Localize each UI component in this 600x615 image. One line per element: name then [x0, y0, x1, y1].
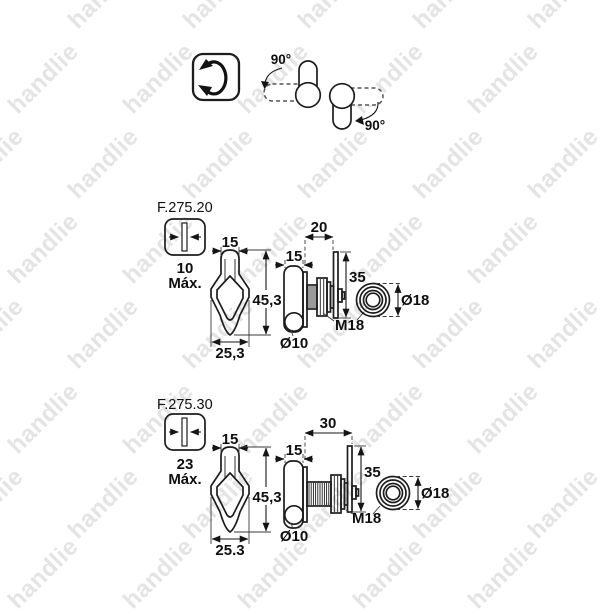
watermark-text: handlie — [0, 123, 30, 205]
product-code: F.275.30 — [157, 397, 213, 413]
watermark-text: handlie — [408, 123, 490, 205]
watermark-text: handlie — [3, 208, 85, 290]
dim-height: 45,3 — [252, 292, 281, 309]
nut — [317, 278, 327, 316]
watermark-text: handlie — [63, 0, 145, 35]
watermark-text: handlie — [523, 123, 600, 205]
nut — [331, 475, 341, 513]
dim-knob-width: 25.3 — [215, 542, 244, 559]
dim-body-length: 30 — [320, 415, 337, 432]
side-view: 20 15 35 M18 Ø10 — [275, 219, 366, 352]
knob-side — [284, 266, 303, 332]
dim-thread: M18 — [335, 317, 364, 334]
dim-cam-height: 35 — [349, 269, 366, 286]
product-drawing-f275-20: F.275.20 10 Máx. 15 45,3 25,3 — [140, 195, 450, 365]
watermark-text: handlie — [463, 38, 545, 120]
dim-knob-depth: 15 — [286, 248, 303, 265]
lever-hub — [330, 84, 355, 109]
hole — [285, 506, 303, 524]
thread-body — [307, 285, 317, 309]
watermark-text: handlie — [178, 0, 260, 35]
watermark-text: handlie — [0, 293, 30, 375]
cam-lever — [334, 252, 339, 318]
watermark-text: handlie — [463, 378, 545, 460]
lever-down-diagram: 90° — [330, 84, 386, 133]
front-view: 15 45,3 25.3 — [211, 431, 282, 559]
product-drawing-f275-30: F.275.30 23 Máx. 15 45,3 25.3 — [140, 390, 455, 575]
watermark-text: handlie — [0, 0, 30, 35]
panel-thickness-symbol: 23 Máx. — [165, 414, 205, 488]
knob-inner-line — [217, 276, 243, 320]
watermark-text: handlie — [63, 123, 145, 205]
dim-knob-width: 25,3 — [215, 345, 244, 362]
dim-hole: Ø10 — [280, 335, 308, 352]
cam-lever — [348, 446, 353, 512]
back-view: Ø18 — [377, 477, 450, 510]
watermark-text: handlie — [463, 208, 545, 290]
watermark-text: handlie — [3, 38, 85, 120]
angle-label-left: 90° — [271, 52, 291, 67]
lever-hub — [296, 83, 321, 108]
rotation-icon — [193, 54, 239, 100]
watermark-text: handlie — [3, 533, 85, 615]
nut-face — [377, 477, 410, 510]
dim-thread: M18 — [352, 510, 381, 527]
knob-side — [284, 461, 303, 528]
cam-screw-tip — [356, 489, 359, 496]
watermark-text: handlie — [63, 293, 145, 375]
cam-screw-tip — [342, 292, 345, 299]
max-thickness-suffix: Máx. — [168, 471, 201, 488]
watermark-text: handlie — [0, 463, 30, 545]
catalog-page: { "watermark": { "text": "handlie" }, "o… — [0, 0, 600, 600]
back-view: Ø18 — [357, 284, 430, 317]
watermark-text: handlie — [463, 533, 545, 615]
dim-knob-top-width: 15 — [222, 431, 239, 448]
watermark-text: handlie — [523, 0, 600, 35]
side-view: 30 15 35 M18 Ø10 — [275, 415, 381, 545]
watermark-text: handlie — [63, 463, 145, 545]
front-view: 15 45,3 25,3 — [211, 234, 282, 362]
watermark-text: handlie — [523, 463, 600, 545]
watermark-text: handlie — [293, 0, 375, 35]
product-code: F.275.20 — [157, 200, 213, 216]
knob-inner-line — [217, 473, 243, 517]
dim-nut-diameter: Ø18 — [421, 485, 449, 502]
watermark-text: handlie — [3, 378, 85, 460]
watermark-text: handlie — [523, 293, 600, 375]
hole — [285, 313, 303, 331]
watermark-text: handlie — [408, 0, 490, 35]
dim-knob-depth: 15 — [286, 442, 303, 459]
thread-body — [307, 482, 331, 506]
orientation-diagram: 90° 90° — [185, 40, 400, 140]
dim-cam-height: 35 — [364, 464, 381, 481]
dim-nut-diameter: Ø18 — [401, 292, 429, 309]
max-thickness-suffix: Máx. — [168, 275, 201, 292]
dim-height: 45,3 — [252, 489, 281, 506]
dim-knob-top-width: 15 — [222, 234, 239, 251]
lever-up-diagram: 90° — [261, 52, 320, 107]
dim-body-length: 20 — [311, 219, 328, 236]
angle-label-right: 90° — [365, 118, 385, 133]
panel-thickness-symbol: 10 Máx. — [165, 219, 205, 292]
nut-face — [357, 284, 390, 317]
dim-hole: Ø10 — [280, 528, 308, 545]
